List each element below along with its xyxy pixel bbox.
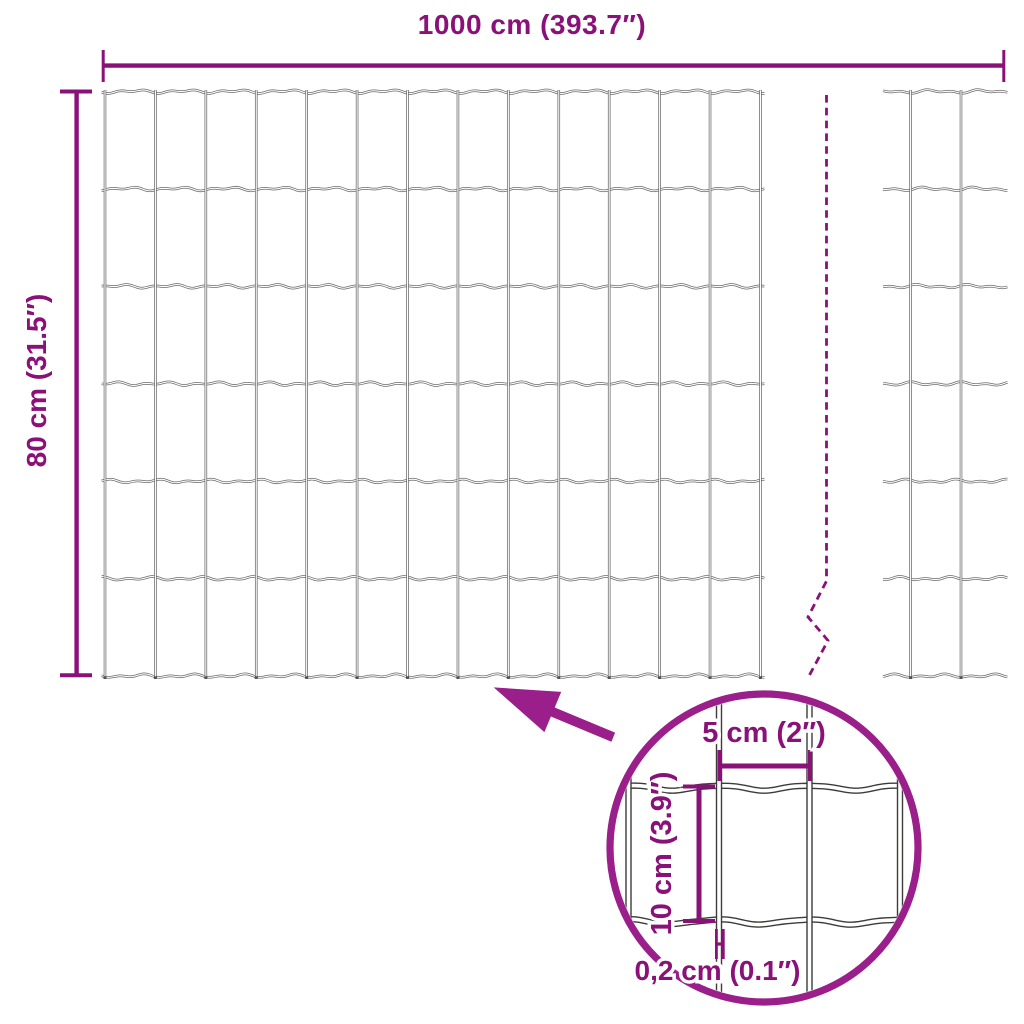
svg-text:10 cm (3.9″): 10 cm (3.9″)	[646, 772, 678, 936]
svg-text:5 cm (2″): 5 cm (2″)	[702, 717, 826, 749]
svg-text:1000 cm (393.7″): 1000 cm (393.7″)	[418, 9, 646, 40]
svg-text:0,2 cm (0.1″): 0,2 cm (0.1″)	[635, 955, 801, 986]
svg-text:80 cm (31.5″): 80 cm (31.5″)	[21, 294, 52, 468]
